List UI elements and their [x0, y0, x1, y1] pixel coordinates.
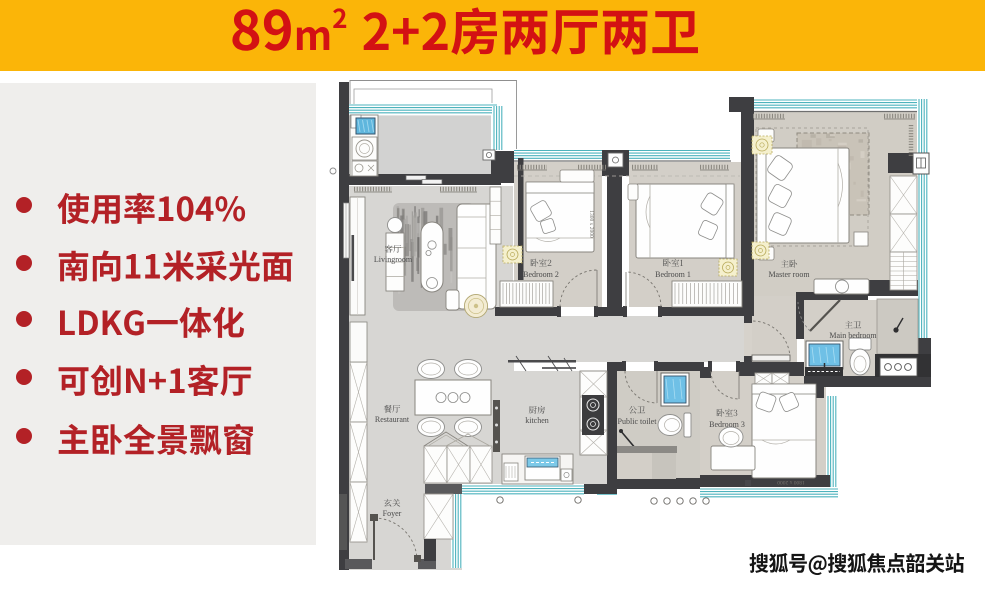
- svg-text:Master room: Master room: [768, 270, 810, 279]
- svg-text:Livingroom: Livingroom: [374, 255, 413, 264]
- svg-text:Bedroom 3: Bedroom 3: [709, 420, 745, 429]
- svg-text:Foyer: Foyer: [383, 509, 402, 518]
- svg-text:Bedroom 1: Bedroom 1: [655, 270, 691, 279]
- svg-text:Bedroom 2: Bedroom 2: [523, 270, 559, 279]
- svg-text:1300 x 2000: 1300 x 2000: [588, 210, 594, 238]
- svg-text:Main bedroom: Main bedroom: [829, 331, 877, 340]
- svg-text:Restaurant: Restaurant: [375, 415, 410, 424]
- svg-text:kitchen: kitchen: [525, 416, 549, 425]
- svg-text:Public toilet: Public toilet: [618, 417, 658, 426]
- svg-text:1800 x 2000: 1800 x 2000: [777, 479, 805, 485]
